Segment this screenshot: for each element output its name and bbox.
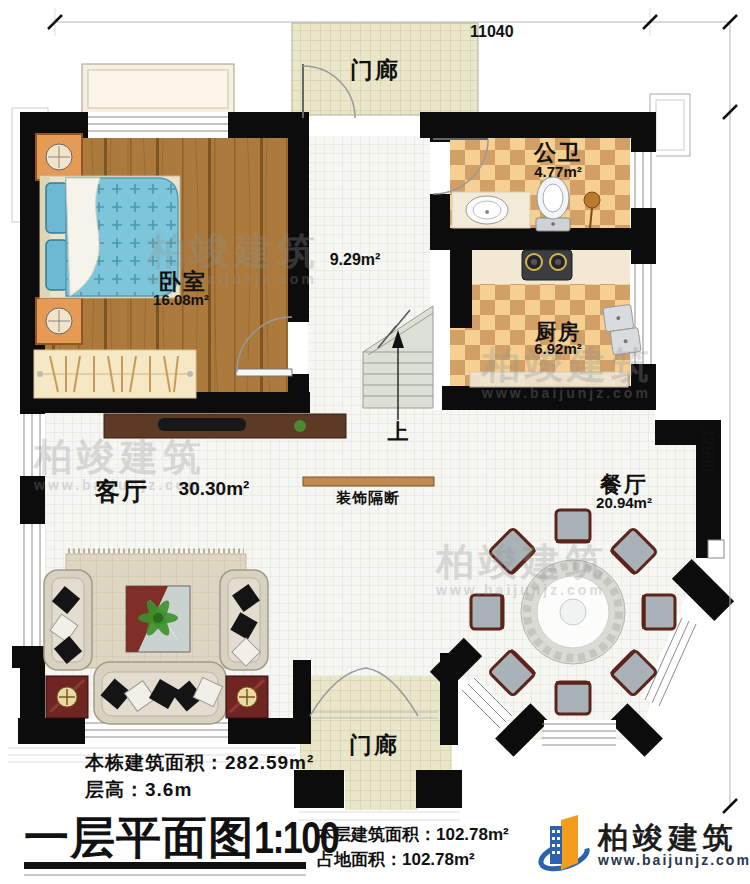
floor-area: 本层建筑面积：102.78m² <box>317 823 509 846</box>
brand-logo <box>538 813 590 879</box>
porch-top-label: 门廊 <box>350 55 400 86</box>
partition-label: 装饰隔断 <box>336 489 400 508</box>
nightstand <box>36 134 82 180</box>
pillow <box>46 240 68 290</box>
living-area: 30.30m² <box>179 478 250 500</box>
bedroom-rug <box>34 350 196 398</box>
tv <box>158 418 246 431</box>
brand-website: www.baijunjz.com <box>598 852 750 868</box>
corner-table <box>226 676 268 718</box>
watermark: 柏竣建筑 www.baijunjz.com <box>436 543 608 598</box>
title-underline <box>24 862 306 869</box>
decorative-partition <box>303 477 434 486</box>
stair-up-label: 上 <box>388 418 409 446</box>
stove <box>522 250 572 280</box>
nightstand <box>36 298 82 344</box>
sofa-left <box>44 570 92 670</box>
porch-bottom-step <box>345 772 418 810</box>
dimension-top: 11040 <box>470 23 514 41</box>
floor-plan-page: 柏竣建筑 www.baijunjz.com 柏竣建筑 www.baijunjz.… <box>0 0 750 884</box>
sofa-bottom <box>94 662 226 724</box>
pillow <box>46 183 68 233</box>
bathroom-area: 4.77m² <box>534 163 582 180</box>
brand-logo-icon <box>538 813 590 875</box>
title-underline-thin <box>24 874 306 876</box>
page-title: 一层平面图1:100 <box>24 808 359 868</box>
porch-bottom-label: 门廊 <box>349 730 399 761</box>
bedroom-area: 16.08m² <box>153 291 209 308</box>
building-total-area: 本栋建筑面积：282.59m² <box>85 750 314 776</box>
dining-area: 20.94m² <box>596 494 652 511</box>
floor-height: 层高：3.6m <box>85 777 192 803</box>
bedroom-door-leaf <box>236 369 292 376</box>
plant-small <box>294 420 306 432</box>
dimension-right: 12590 <box>698 428 716 473</box>
corner-table <box>46 676 88 718</box>
footprint-area: 占地面积：102.78m² <box>317 848 475 871</box>
kitchen-area: 6.92m² <box>534 340 582 357</box>
coffee-table <box>126 586 190 652</box>
living-label: 客厅 <box>95 475 149 508</box>
sofa-right <box>220 570 268 670</box>
hallway-area: 9.29m² <box>330 251 381 269</box>
toilet <box>536 177 570 231</box>
bedroom-window <box>88 112 228 138</box>
